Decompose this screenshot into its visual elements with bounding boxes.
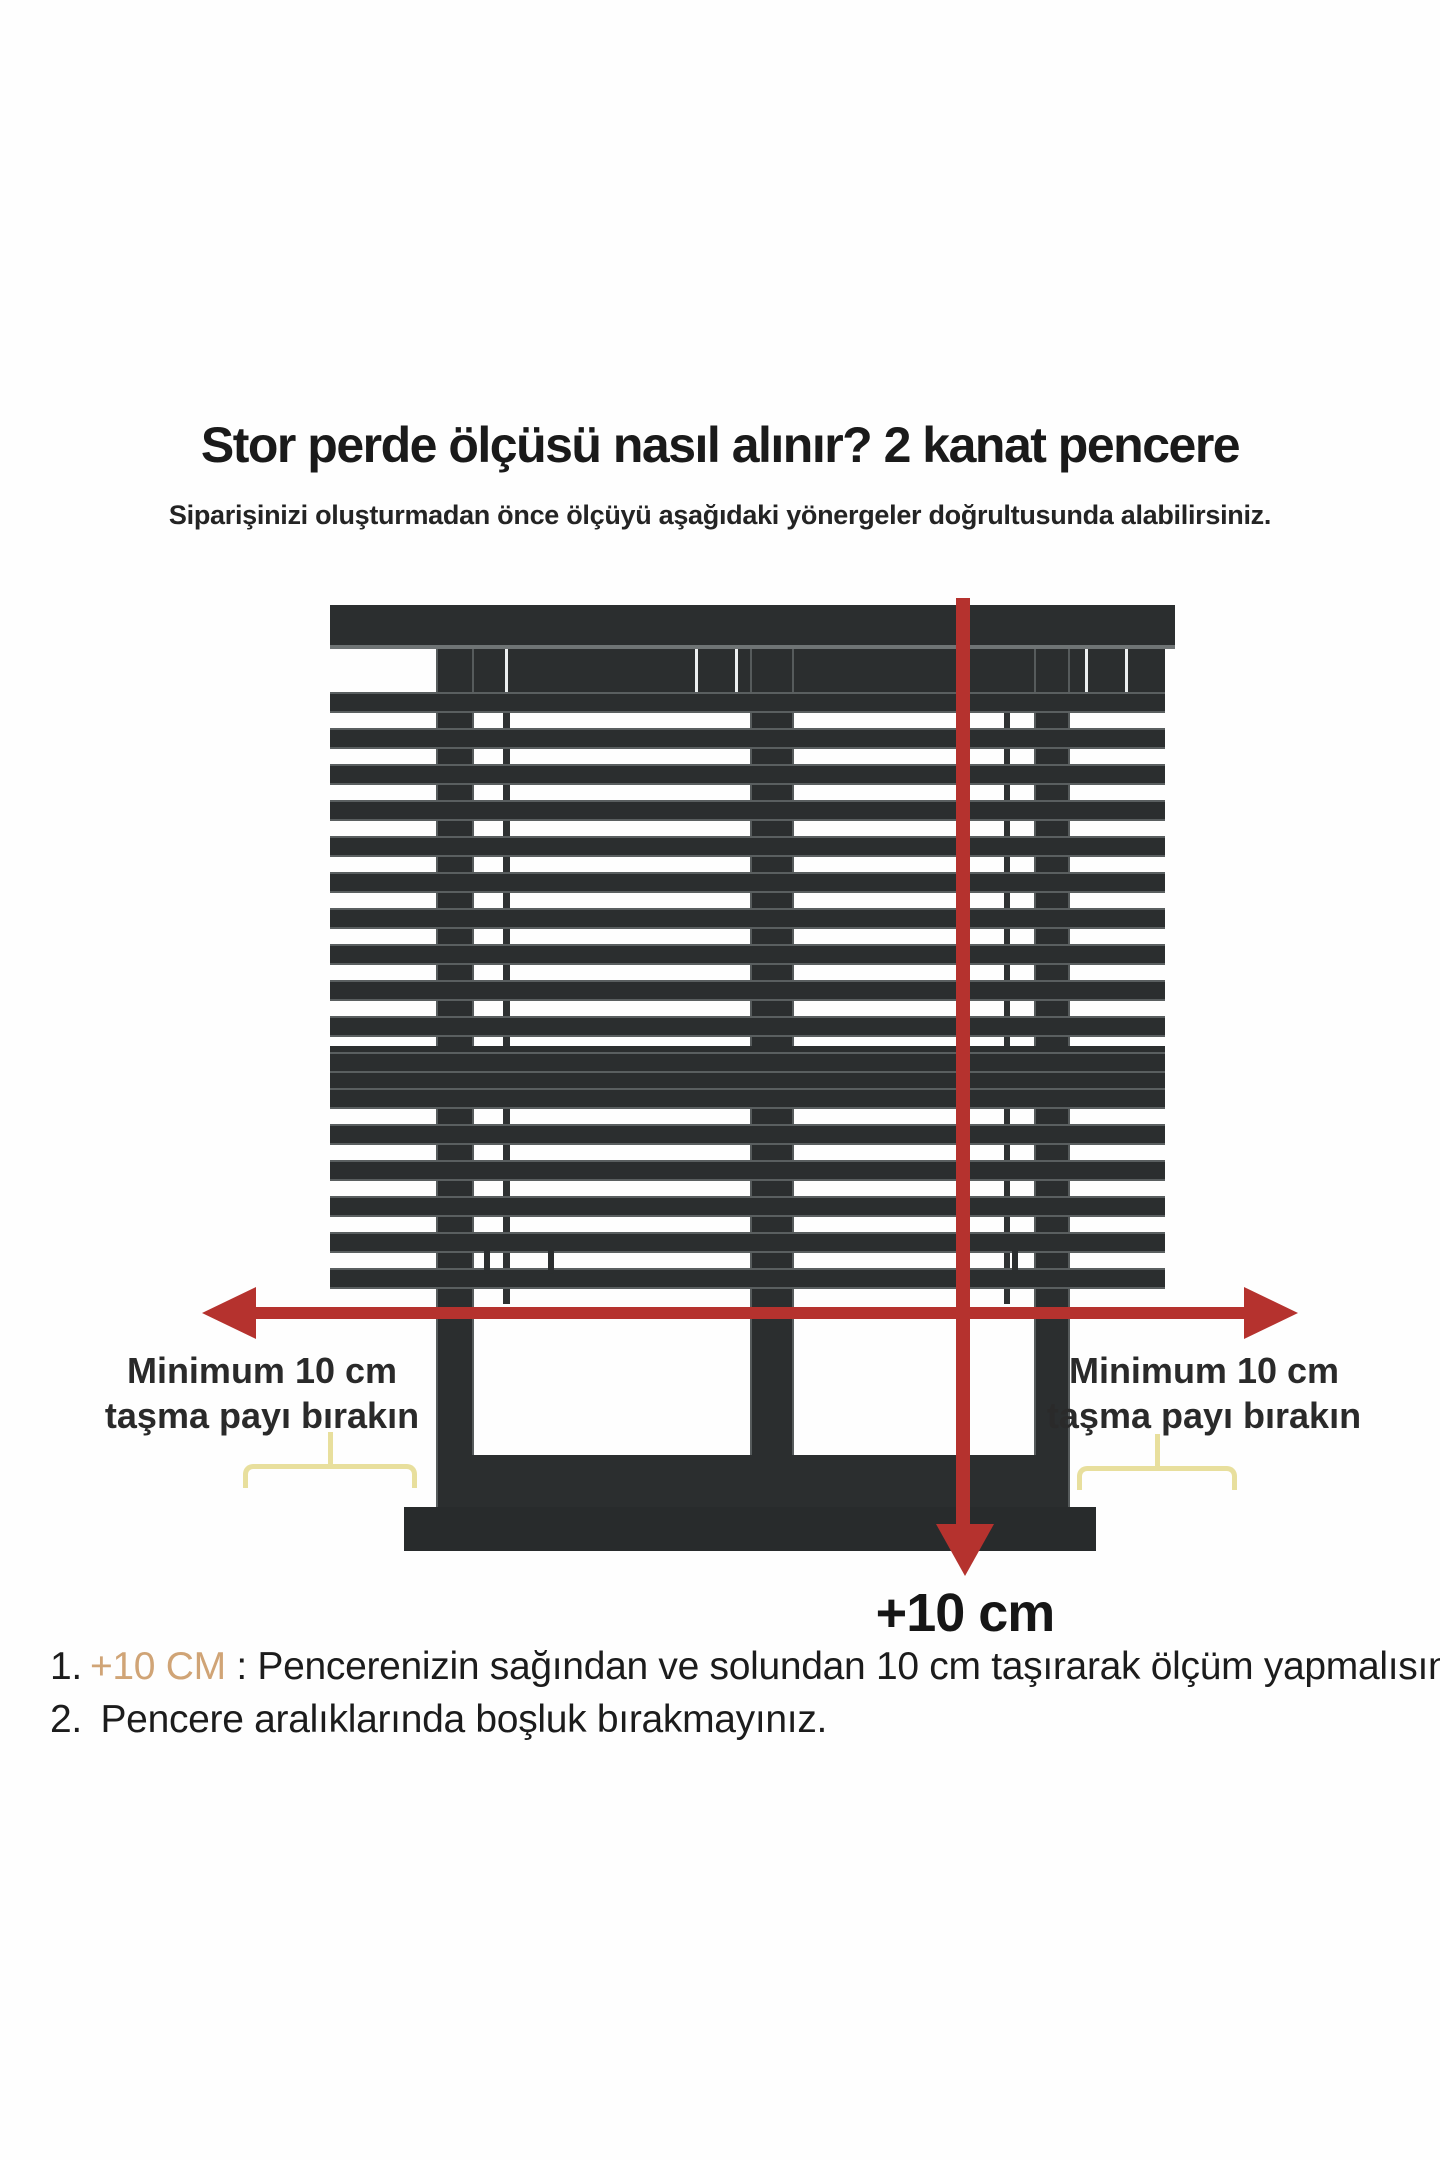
bracket-tab-line <box>735 649 738 692</box>
instruction-2-text: Pencere aralıklarında boşluk bırakmayını… <box>90 1698 827 1741</box>
cord-hook-icon <box>484 1250 490 1274</box>
down-arrowhead-icon <box>936 1524 994 1576</box>
window-measurement-diagram: Minimum 10 cm taşma payı bırakın Minimum… <box>0 0 1440 2160</box>
right-overhang-label-line1: Minimum 10 cm <box>1024 1348 1384 1393</box>
cord-hook-icon <box>548 1250 554 1274</box>
instruction-1-text: : Pencerenizin sağından ve solundan 10 c… <box>226 1645 1440 1688</box>
bracket-tab-line <box>695 649 698 692</box>
bracket-tab-line <box>1125 649 1128 692</box>
instruction-1-number: 1. <box>50 1645 82 1688</box>
instruction-2-number: 2. <box>50 1698 82 1741</box>
height-arrow-line <box>956 598 970 1528</box>
left-arrowhead-icon <box>202 1287 256 1339</box>
instruction-item-1: 1.+10 CM : Pencerenizin sağından ve solu… <box>50 1640 1440 1693</box>
right-overhang-label: Minimum 10 cm taşma payı bırakın <box>1024 1348 1384 1438</box>
cord-hook-icon <box>1012 1250 1018 1274</box>
bracket-tab-line <box>1085 649 1088 692</box>
left-overhang-label-line2: taşma payı bırakın <box>82 1393 442 1438</box>
instruction-1-highlight: +10 CM <box>90 1645 226 1688</box>
blind-slats <box>330 692 1165 1304</box>
left-overhang-brace-icon <box>243 1464 417 1490</box>
right-arrowhead-icon <box>1244 1287 1298 1339</box>
instructions: 1.+10 CM : Pencerenizin sağından ve solu… <box>50 1640 1440 1746</box>
measurement-guide-page: Stor perde ölçüsü nasıl alınır? 2 kanat … <box>0 0 1440 2160</box>
left-overhang-label-line1: Minimum 10 cm <box>82 1348 442 1393</box>
plus-10-cm-label: +10 cm <box>845 1582 1085 1644</box>
width-arrow-line <box>240 1307 1250 1319</box>
left-overhang-label: Minimum 10 cm taşma payı bırakın <box>82 1348 442 1438</box>
bracket-tab-line <box>505 649 508 692</box>
instruction-item-2: 2. Pencere aralıklarında boşluk bırakmay… <box>50 1693 1440 1746</box>
right-overhang-brace-icon <box>1077 1466 1237 1492</box>
right-overhang-label-line2: taşma payı bırakın <box>1024 1393 1384 1438</box>
blind-headrail <box>330 605 1175 649</box>
